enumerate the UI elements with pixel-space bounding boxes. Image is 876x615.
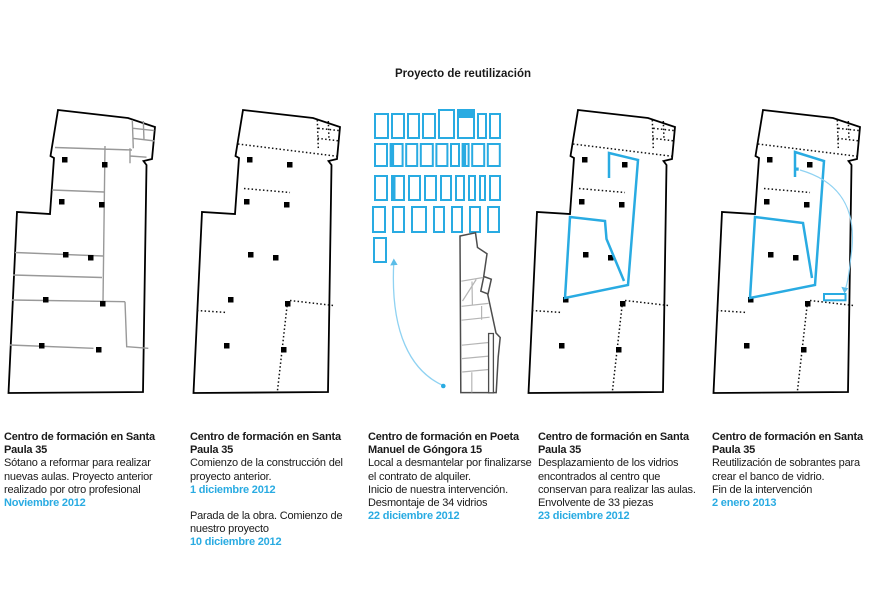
glass-pane xyxy=(456,176,464,200)
panel-heading: Centro de formación en Santa Paula 35 xyxy=(538,431,710,457)
timeline-panel-3: Centro de formación en Poeta Manuel de G… xyxy=(368,431,534,523)
panel-text: Desplazamiento de los vidrios encontrado… xyxy=(538,457,710,510)
glass-pane-thick-edge xyxy=(392,176,396,200)
plan5-columns xyxy=(744,157,813,353)
glass-pane xyxy=(374,238,386,262)
panel-heading: Centro de formación en Santa Paula 35 xyxy=(4,431,170,457)
glass-pane xyxy=(375,144,387,166)
glass-pane xyxy=(434,207,444,232)
timeline-panel-4: Centro de formación en Santa Paula 35Des… xyxy=(538,431,710,523)
glass-pane xyxy=(480,176,485,200)
glass-pane xyxy=(373,207,385,232)
panel-text: Comienzo de la construcción del proyecto… xyxy=(190,457,356,483)
panel-date: 1 diciembre 2012 xyxy=(190,484,356,497)
panel-text: Sótano a reformar para realizar nuevas a… xyxy=(4,457,170,497)
glass-pane xyxy=(392,114,404,138)
plan2-outline xyxy=(194,110,341,393)
glass-pane xyxy=(470,207,480,232)
glass-pane xyxy=(423,114,435,138)
glass-pane xyxy=(488,207,499,232)
bench-arrowhead-icon xyxy=(841,287,848,294)
glass-pane xyxy=(452,207,462,232)
plan4-outline xyxy=(529,110,676,393)
gongora-wall-bar xyxy=(489,334,494,393)
plan2-columns xyxy=(224,157,293,353)
panel-heading: Centro de formación en Poeta Manuel de G… xyxy=(368,431,534,457)
timeline-panel-2: Centro de formación en Santa Paula 35Com… xyxy=(190,431,356,550)
dismantle-arrowhead-icon xyxy=(390,259,397,266)
glass-pane xyxy=(436,144,447,166)
glass-pane xyxy=(409,176,420,200)
bench-arrow-origin-dot xyxy=(796,168,799,171)
glass-pane xyxy=(490,176,500,200)
timeline-panel-5: Centro de formación en Santa Paula 35Reu… xyxy=(712,431,876,510)
glass-pane xyxy=(412,207,426,232)
bench-arrow-curve xyxy=(800,170,852,290)
panel-date: 2 enero 2013 xyxy=(712,497,876,510)
plan4-columns xyxy=(559,157,628,353)
plan2-dotted-partitions xyxy=(197,120,340,391)
glass-pane xyxy=(408,114,419,138)
gongora-building-plan xyxy=(460,233,500,393)
panel-text: Local a desmantelar por finalizarse el c… xyxy=(368,457,534,510)
panel-heading: Centro de formación en Santa Paula 35 xyxy=(712,431,876,457)
glass-pane xyxy=(439,110,454,138)
glass-pane-filled-cap xyxy=(458,110,474,118)
glass-pane xyxy=(393,207,404,232)
glass-pane xyxy=(478,114,486,138)
plan3-gongora-dismantling xyxy=(373,110,500,393)
panel-date: 22 diciembre 2012 xyxy=(368,510,534,523)
timeline-panel-1: Centro de formación en Santa Paula 35Sót… xyxy=(4,431,170,510)
glass-pane xyxy=(421,144,433,166)
panel-date: Noviembre 2012 xyxy=(4,497,170,510)
glass-panes-grid xyxy=(373,110,500,262)
plan5-dotted-partitions xyxy=(717,120,860,391)
reuse-project-diagram: Proyecto de reutilización xyxy=(0,0,876,615)
glass-envelope-walls xyxy=(565,153,638,298)
glass-pane xyxy=(441,176,451,200)
panel-heading: Centro de formación en Santa Paula 35 xyxy=(190,431,356,457)
glass-pane xyxy=(375,176,387,200)
floor-plan-2-work-stopped xyxy=(194,110,341,393)
glass-pane xyxy=(472,144,484,166)
glass-pane xyxy=(375,114,388,138)
glass-pane-thick-edge xyxy=(391,144,395,166)
floor-plan-5-final xyxy=(714,110,861,393)
glass-envelope-walls-final xyxy=(750,152,824,298)
floor-plan-1-previous-project xyxy=(9,110,156,393)
arrow-origin-dot xyxy=(441,384,446,389)
plan5-outline xyxy=(714,110,861,393)
glass-pane-thick-edge xyxy=(463,144,467,166)
glass-bench xyxy=(824,294,846,300)
panel-text: Reutilización de sobrantes para crear el… xyxy=(712,457,876,497)
plan1-partitions xyxy=(10,120,155,348)
panel-date: 23 diciembre 2012 xyxy=(538,510,710,523)
floor-plan-4-envelope xyxy=(529,110,676,393)
plan4-dotted-partitions xyxy=(532,120,675,391)
panel-text: Parada de la obra. Comienzo de nuestro p… xyxy=(190,510,356,536)
gongora-outline xyxy=(460,233,500,393)
glass-pane xyxy=(406,144,417,166)
glass-pane xyxy=(425,176,436,200)
dismantle-arrow-curve xyxy=(393,262,443,386)
panel-date: 10 diciembre 2012 xyxy=(190,536,356,549)
glass-pane xyxy=(469,176,475,200)
glass-pane xyxy=(488,144,500,166)
plan1-outline xyxy=(9,110,156,393)
glass-pane xyxy=(490,114,500,138)
glass-pane xyxy=(451,144,459,166)
